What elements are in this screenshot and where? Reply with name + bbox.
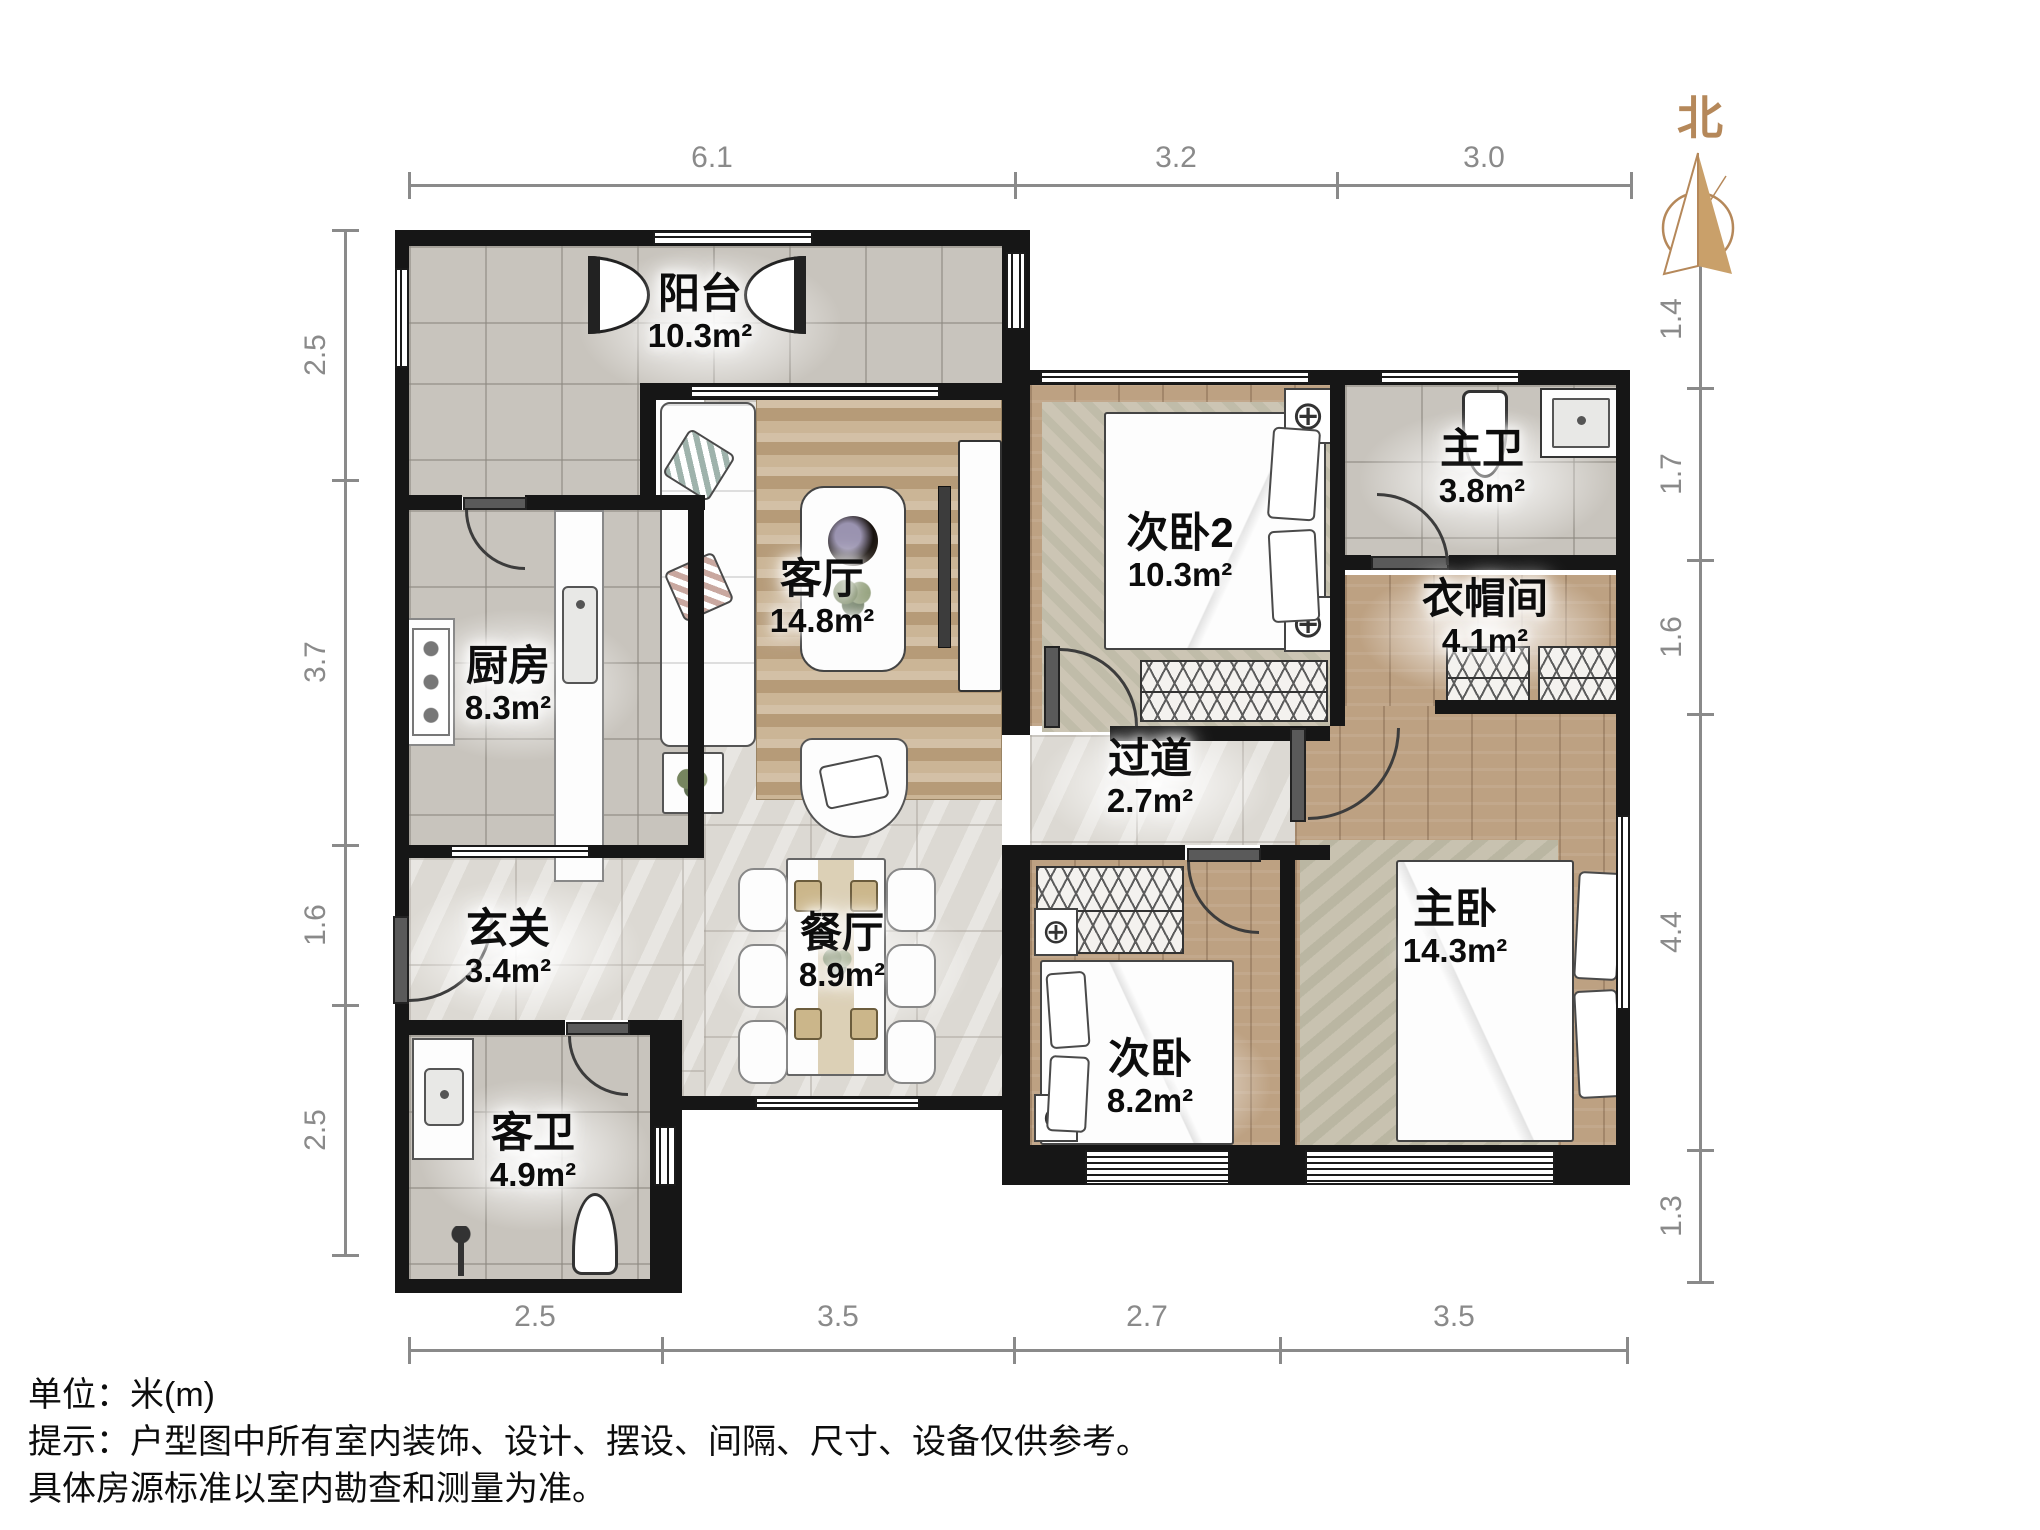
wall — [395, 508, 409, 918]
kitchen-window — [450, 845, 590, 858]
dining-chair — [738, 868, 788, 932]
tv — [938, 486, 951, 648]
room-name: 衣帽间 — [1422, 578, 1548, 620]
room-name: 客厅 — [770, 558, 875, 600]
room-name: 过道 — [1107, 738, 1193, 780]
vanity-faucet — [440, 1090, 449, 1099]
dining-chair — [738, 944, 788, 1008]
dim-label: 2.7 — [1126, 1300, 1168, 1334]
place-setting — [850, 1008, 878, 1040]
dim-label: 4.4 — [1655, 911, 1689, 953]
wall — [525, 495, 705, 510]
balcony-right-window — [1006, 252, 1026, 330]
dim-line-bottom — [409, 1349, 1628, 1352]
wall — [1002, 330, 1030, 735]
dim-tick — [332, 844, 359, 847]
dim-label: 3.7 — [299, 641, 333, 683]
dim-tick — [332, 479, 359, 482]
wall — [628, 1020, 682, 1035]
dining-chair — [886, 944, 936, 1008]
room-area: 4.9m² — [490, 1154, 576, 1195]
dim-tick — [1013, 1337, 1016, 1364]
dim-line-left — [344, 230, 347, 1256]
master-bay-window — [1305, 1150, 1555, 1185]
wall — [1616, 370, 1630, 1185]
dining-chair — [738, 1020, 788, 1084]
room-label-living: 客厅 14.8m² — [770, 558, 875, 641]
nightstand: ⊕ — [1034, 908, 1078, 956]
room-area: 8.2m² — [1107, 1080, 1193, 1121]
room-area: 14.3m² — [1403, 930, 1508, 971]
master-bath-window — [1380, 371, 1520, 384]
compass-icon — [1648, 148, 1748, 283]
wall — [1449, 555, 1630, 570]
tv-cabinet — [958, 440, 1002, 692]
bedroom-bay-window — [1085, 1150, 1230, 1185]
room-label-master-bedroom: 主卧 14.3m² — [1403, 888, 1508, 971]
cooktop — [412, 628, 450, 736]
room-area: 3.8m² — [1439, 470, 1525, 511]
dim-line-top — [409, 184, 1632, 187]
room-name: 阳台 — [648, 273, 753, 315]
bedroom2-door-leaf — [1044, 646, 1060, 728]
bed-pillow — [1045, 971, 1090, 1050]
room-label-master-bath: 主卫 3.8m² — [1439, 428, 1525, 511]
dim-tick — [1687, 1149, 1714, 1152]
shower-fixture — [448, 1226, 474, 1276]
guest-bath-window — [654, 1126, 676, 1186]
balcony-window — [653, 231, 813, 245]
room-area: 8.3m² — [465, 687, 551, 728]
wall — [1330, 370, 1345, 726]
dining-chair — [886, 868, 936, 932]
wall — [395, 1002, 409, 1293]
footer-line-2: 提示：户型图中所有室内装饰、设计、摆设、间隔、尺寸、设备仅供参考。 — [28, 1419, 1150, 1466]
bed-pillow — [1046, 1055, 1090, 1133]
dim-tick — [1014, 172, 1017, 199]
balcony-side-window — [395, 268, 409, 368]
room-area: 4.1m² — [1422, 620, 1548, 661]
wall — [395, 1020, 565, 1035]
room-label-guest-bath: 客卫 4.9m² — [490, 1112, 576, 1195]
master-bedroom-door-leaf — [1290, 728, 1306, 822]
bedroom2-window — [1040, 371, 1310, 384]
wall — [1260, 845, 1330, 860]
dim-tick — [1687, 559, 1714, 562]
wall — [1030, 845, 1185, 860]
dim-label: 1.6 — [299, 904, 333, 946]
dim-label: 1.4 — [1655, 298, 1689, 340]
dim-label: 1.6 — [1655, 616, 1689, 658]
cloakroom-wardrobe — [1538, 646, 1626, 708]
room-name: 次卧2 — [1126, 512, 1233, 554]
dim-tick — [1687, 713, 1714, 716]
room-name: 客卫 — [490, 1112, 576, 1154]
room-area: 14.8m² — [770, 600, 875, 641]
wall — [688, 495, 704, 858]
dim-label: 2.5 — [299, 334, 333, 376]
dim-tick — [1626, 1337, 1629, 1364]
dim-tick — [1687, 387, 1714, 390]
room-name: 厨房 — [465, 645, 551, 687]
room-label-cloakroom: 衣帽间 4.1m² — [1422, 578, 1548, 661]
wall — [1345, 555, 1371, 570]
dim-label: 2.5 — [514, 1300, 556, 1334]
dim-label: 3.5 — [817, 1300, 859, 1334]
room-name: 主卫 — [1439, 428, 1525, 470]
footer-line-1: 单位：米(m) — [28, 1372, 1150, 1419]
room-label-hallway: 过道 2.7m² — [1107, 738, 1193, 821]
dim-tick — [332, 1004, 359, 1007]
room-label-bedroom2: 次卧2 10.3m² — [1126, 512, 1233, 595]
room-name: 餐厅 — [799, 912, 885, 954]
room-area: 3.4m² — [465, 950, 551, 991]
room-label-entry: 玄关 3.4m² — [465, 908, 551, 991]
floor-plan-canvas: ⊕ ⊕ ⊕ ⊕ — [0, 0, 2040, 1530]
dim-tick — [332, 229, 359, 232]
dining-window — [755, 1097, 920, 1109]
room-label-dining: 餐厅 8.9m² — [799, 912, 885, 995]
dim-line-right — [1699, 250, 1702, 1283]
dim-label: 3.5 — [1433, 1300, 1475, 1334]
room-name: 主卧 — [1403, 888, 1508, 930]
wall — [1435, 700, 1630, 714]
room-name: 次卧 — [1107, 1038, 1193, 1080]
room-area: 10.3m² — [648, 315, 753, 356]
balcony-floor-l — [409, 383, 640, 497]
entry-floor-b — [682, 858, 704, 1096]
entry-door-leaf — [393, 916, 409, 1004]
footer-disclaimer: 单位：米(m) 提示：户型图中所有室内装饰、设计、摆设、间隔、尺寸、设备仅供参考… — [28, 1372, 1150, 1513]
bedroom2-wardrobe — [1140, 660, 1328, 722]
bed-pillow — [1268, 529, 1321, 623]
dim-label: 2.5 — [299, 1109, 333, 1151]
room-area: 8.9m² — [799, 954, 885, 995]
dim-label: 3.2 — [1155, 141, 1197, 175]
kitchen-faucet — [576, 600, 585, 609]
bedroom-door-leaf — [1187, 848, 1261, 862]
place-setting — [794, 1008, 822, 1040]
dim-tick — [1687, 1281, 1714, 1284]
room-area: 2.7m² — [1107, 780, 1193, 821]
guest-bath-door-leaf — [566, 1022, 630, 1035]
bed-pillow — [1267, 426, 1321, 521]
room-label-balcony: 阳台 10.3m² — [648, 273, 753, 356]
dim-tick — [1630, 172, 1633, 199]
wall — [1002, 845, 1030, 1185]
kitchen-door-leaf — [463, 497, 527, 510]
dim-label: 3.0 — [1463, 141, 1505, 175]
dim-tick — [408, 172, 411, 199]
wall — [640, 383, 656, 501]
wall — [1280, 845, 1295, 1145]
bath-faucet — [1577, 416, 1586, 425]
dim-tick — [1279, 1337, 1282, 1364]
kitchen-counter — [554, 510, 604, 882]
room-label-kitchen: 厨房 8.3m² — [465, 645, 551, 728]
place-setting — [850, 880, 878, 912]
room-label-bedroom: 次卧 8.2m² — [1107, 1038, 1193, 1121]
dim-label: 6.1 — [691, 141, 733, 175]
dim-tick — [1336, 172, 1339, 199]
nightstand-mark: ⊕ — [1042, 915, 1071, 949]
north-label: 北 — [1677, 82, 1723, 148]
dining-chair — [886, 1020, 936, 1084]
dim-tick — [661, 1337, 664, 1364]
room-area: 10.3m² — [1126, 554, 1233, 595]
footer-line-3: 具体房源标准以室内勘查和测量为准。 — [28, 1466, 1150, 1513]
living-window — [690, 385, 940, 398]
room-name: 玄关 — [465, 908, 551, 950]
dim-label: 1.3 — [1655, 1195, 1689, 1237]
dim-label: 1.7 — [1655, 453, 1689, 495]
dim-tick — [332, 1254, 359, 1257]
wall — [395, 1279, 682, 1293]
place-setting — [794, 880, 822, 912]
master-bedroom-window — [1616, 815, 1630, 1010]
dim-tick — [408, 1337, 411, 1364]
